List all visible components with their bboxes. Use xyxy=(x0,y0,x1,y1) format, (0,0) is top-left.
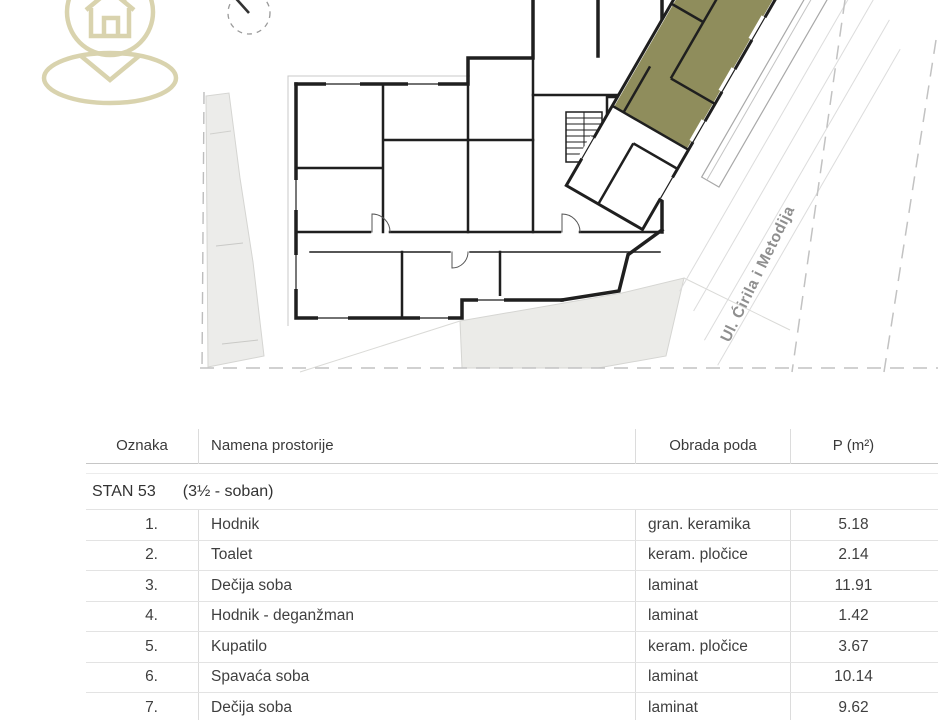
header-spacer xyxy=(86,464,938,474)
row-number: 3. xyxy=(86,571,198,601)
room-area: 3.67 xyxy=(790,632,938,662)
room-area: 2.14 xyxy=(790,541,938,571)
overhang-outline xyxy=(288,76,470,326)
table-row: 5. Kupatilo keram. pločice 3.67 xyxy=(86,632,938,663)
floor-finish: laminat xyxy=(635,602,790,632)
room-area: 5.18 xyxy=(790,510,938,540)
room-area: 9.62 xyxy=(790,693,938,720)
table-row: 2. Toalet keram. pločice 2.14 xyxy=(86,541,938,572)
row-number: 1. xyxy=(86,510,198,540)
room-area: 11.91 xyxy=(790,571,938,601)
table-row: 6. Spavaća soba laminat 10.14 xyxy=(86,663,938,694)
room-name: Dečija soba xyxy=(198,693,635,720)
row-number: 5. xyxy=(86,632,198,662)
apartment-subtitle: (3½ - soban) xyxy=(183,483,274,501)
row-number: 6. xyxy=(86,663,198,693)
table-row: 7. Dečija soba laminat 9.62 xyxy=(86,693,938,720)
apartment-title: STAN 53 xyxy=(92,483,156,501)
room-name: Hodnik xyxy=(198,510,635,540)
table-header-row: Oznaka Namena prostorije Obrada poda P (… xyxy=(86,430,938,464)
header-obrada: Obrada poda xyxy=(635,429,790,464)
compass-icon xyxy=(228,0,270,34)
row-number: 4. xyxy=(86,602,198,632)
floor-finish: keram. pločice xyxy=(635,632,790,662)
table-row: 4. Hodnik - deganžman laminat 1.42 xyxy=(86,602,938,633)
floor-finish: laminat xyxy=(635,571,790,601)
area-table: Oznaka Namena prostorije Obrada poda P (… xyxy=(86,430,938,720)
page: Ul. Ćirila i Metodija Oznaka Namena pros… xyxy=(0,0,938,720)
header-oznaka: Oznaka xyxy=(86,429,198,464)
floor-finish: gran. keramika xyxy=(635,510,790,540)
floor-finish: keram. pločice xyxy=(635,541,790,571)
terrain-left xyxy=(202,92,264,370)
terrain-bottom xyxy=(300,278,790,372)
table-row: 1. Hodnik gran. keramika 5.18 xyxy=(86,510,938,541)
table-rows: 1. Hodnik gran. keramika 5.18 2. Toalet … xyxy=(86,510,938,720)
row-number: 7. xyxy=(86,693,198,720)
floor-finish: laminat xyxy=(635,693,790,720)
apartment-group-row: STAN 53 (3½ - soban) xyxy=(86,474,938,510)
room-name: Hodnik - deganžman xyxy=(198,602,635,632)
street-label: Ul. Ćirila i Metodija xyxy=(717,203,799,345)
room-name: Dečija soba xyxy=(198,571,635,601)
room-name: Spavaća soba xyxy=(198,663,635,693)
row-number: 2. xyxy=(86,541,198,571)
room-name: Kupatilo xyxy=(198,632,635,662)
house-location-pin-icon xyxy=(44,0,176,103)
room-area: 1.42 xyxy=(790,602,938,632)
room-name: Toalet xyxy=(198,541,635,571)
header-p-m2: P (m²) xyxy=(790,429,938,464)
room-area: 10.14 xyxy=(790,663,938,693)
windows xyxy=(292,80,504,322)
logo xyxy=(34,0,204,114)
floor-finish: laminat xyxy=(635,663,790,693)
table-row: 3. Dečija soba laminat 11.91 xyxy=(86,571,938,602)
header-namena: Namena prostorije xyxy=(198,429,635,464)
